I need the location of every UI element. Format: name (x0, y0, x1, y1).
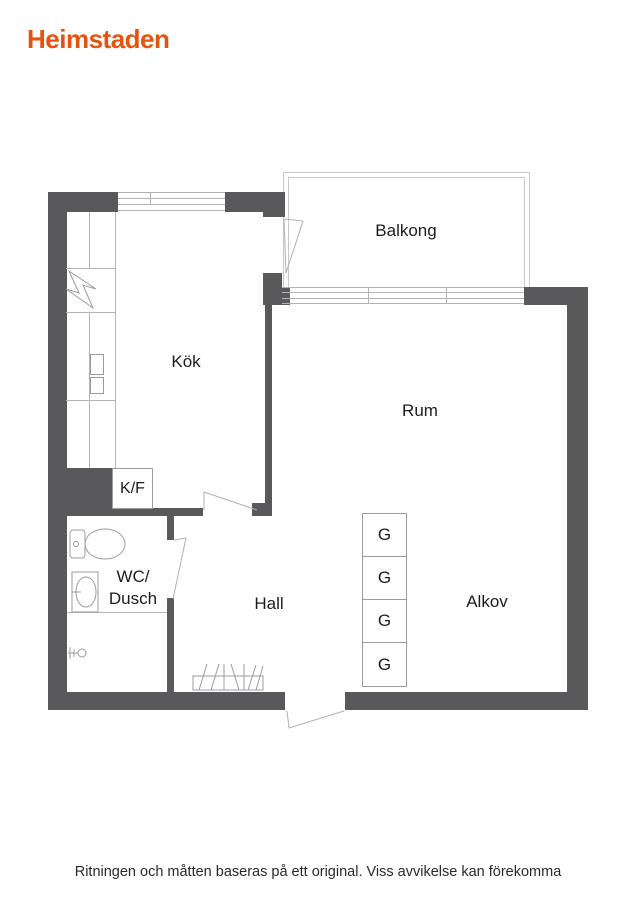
room-label-hall: Hall (254, 593, 283, 615)
room-label-alkov: Alkov (466, 591, 508, 613)
shower-mixer-icon (68, 647, 86, 659)
kitchen-door-swing-icon (204, 492, 257, 510)
floorplan: K/F G G G G (0, 0, 636, 900)
toilet-icon (70, 529, 125, 559)
plan-symbols (0, 0, 636, 900)
room-label-wc-dusch: WC/ Dusch (109, 566, 157, 610)
wc-door-swing-icon (173, 538, 186, 599)
wc-label-line2: Dusch (109, 588, 157, 610)
page-root: { "brand": { "logo_text": "Heimstaden", … (0, 0, 636, 900)
balcony-door-swing-icon (284, 219, 303, 273)
footer-disclaimer: Ritningen och måtten baseras på ett orig… (0, 864, 636, 880)
coat-rack-icon (193, 664, 263, 690)
room-label-balkong: Balkong (375, 220, 436, 242)
room-label-kok: Kök (171, 351, 200, 373)
washbasin-icon (72, 572, 98, 612)
room-label-rum: Rum (402, 400, 438, 422)
stove-icon (66, 271, 96, 308)
entrance-door-swing-icon (287, 711, 344, 728)
wc-label-line1: WC/ (109, 566, 157, 588)
